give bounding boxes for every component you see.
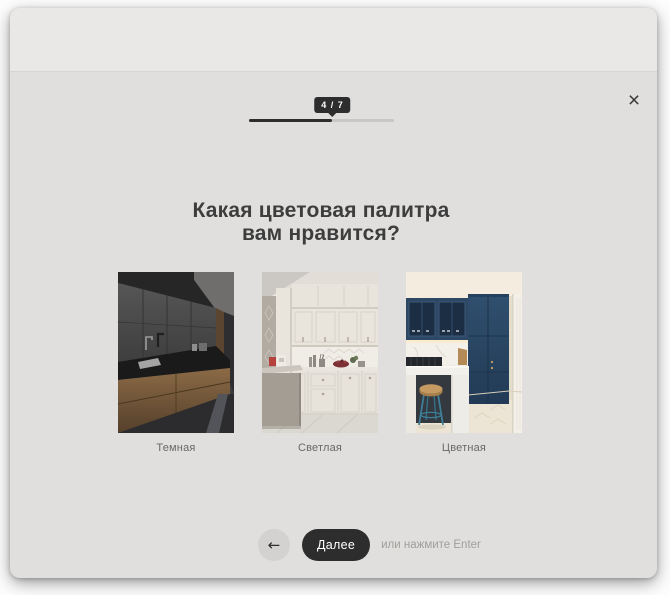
options-row: Темная [118,272,522,454]
blue-kitchen-photo[interactable] [406,272,522,433]
question-title-line2: вам нравится? [10,222,632,245]
progress-badge-pointer [328,113,336,117]
blue-kitchen-illustration [406,272,522,433]
option-label-light: Светлая [262,442,378,454]
enter-hint: или нажмите Enter [381,539,481,551]
next-button[interactable]: Далее [302,529,370,561]
footer-controls: ← Далее или нажмите Enter [258,529,481,561]
progress-fill [249,119,332,122]
option-card-light[interactable]: Светлая [262,272,378,454]
progress-label: 4 / 7 [321,100,344,110]
question-title-line1: Какая цветовая палитра [10,199,632,222]
option-label-colorful: Цветная [406,442,522,454]
dark-kitchen-illustration [118,272,234,433]
quiz-modal: 4 / 7 × Какая цветовая палитра вам нрави… [10,8,657,578]
question-title: Какая цветовая палитра вам нравится? [10,199,632,245]
light-kitchen-photo[interactable] [262,272,378,433]
back-button[interactable]: ← [258,529,290,561]
dark-kitchen-photo[interactable] [118,272,234,433]
option-card-dark[interactable]: Темная [118,272,234,454]
close-button[interactable]: × [621,88,647,114]
option-card-colorful[interactable]: Цветная [406,272,522,454]
light-kitchen-illustration [262,272,378,433]
modal-header-band [10,8,657,72]
progress-badge: 4 / 7 [314,97,350,113]
option-label-dark: Темная [118,442,234,454]
screen-background: 4 / 7 × Какая цветовая палитра вам нрави… [0,0,670,595]
arrow-left-icon: ← [268,536,281,554]
progress-track [249,119,394,122]
